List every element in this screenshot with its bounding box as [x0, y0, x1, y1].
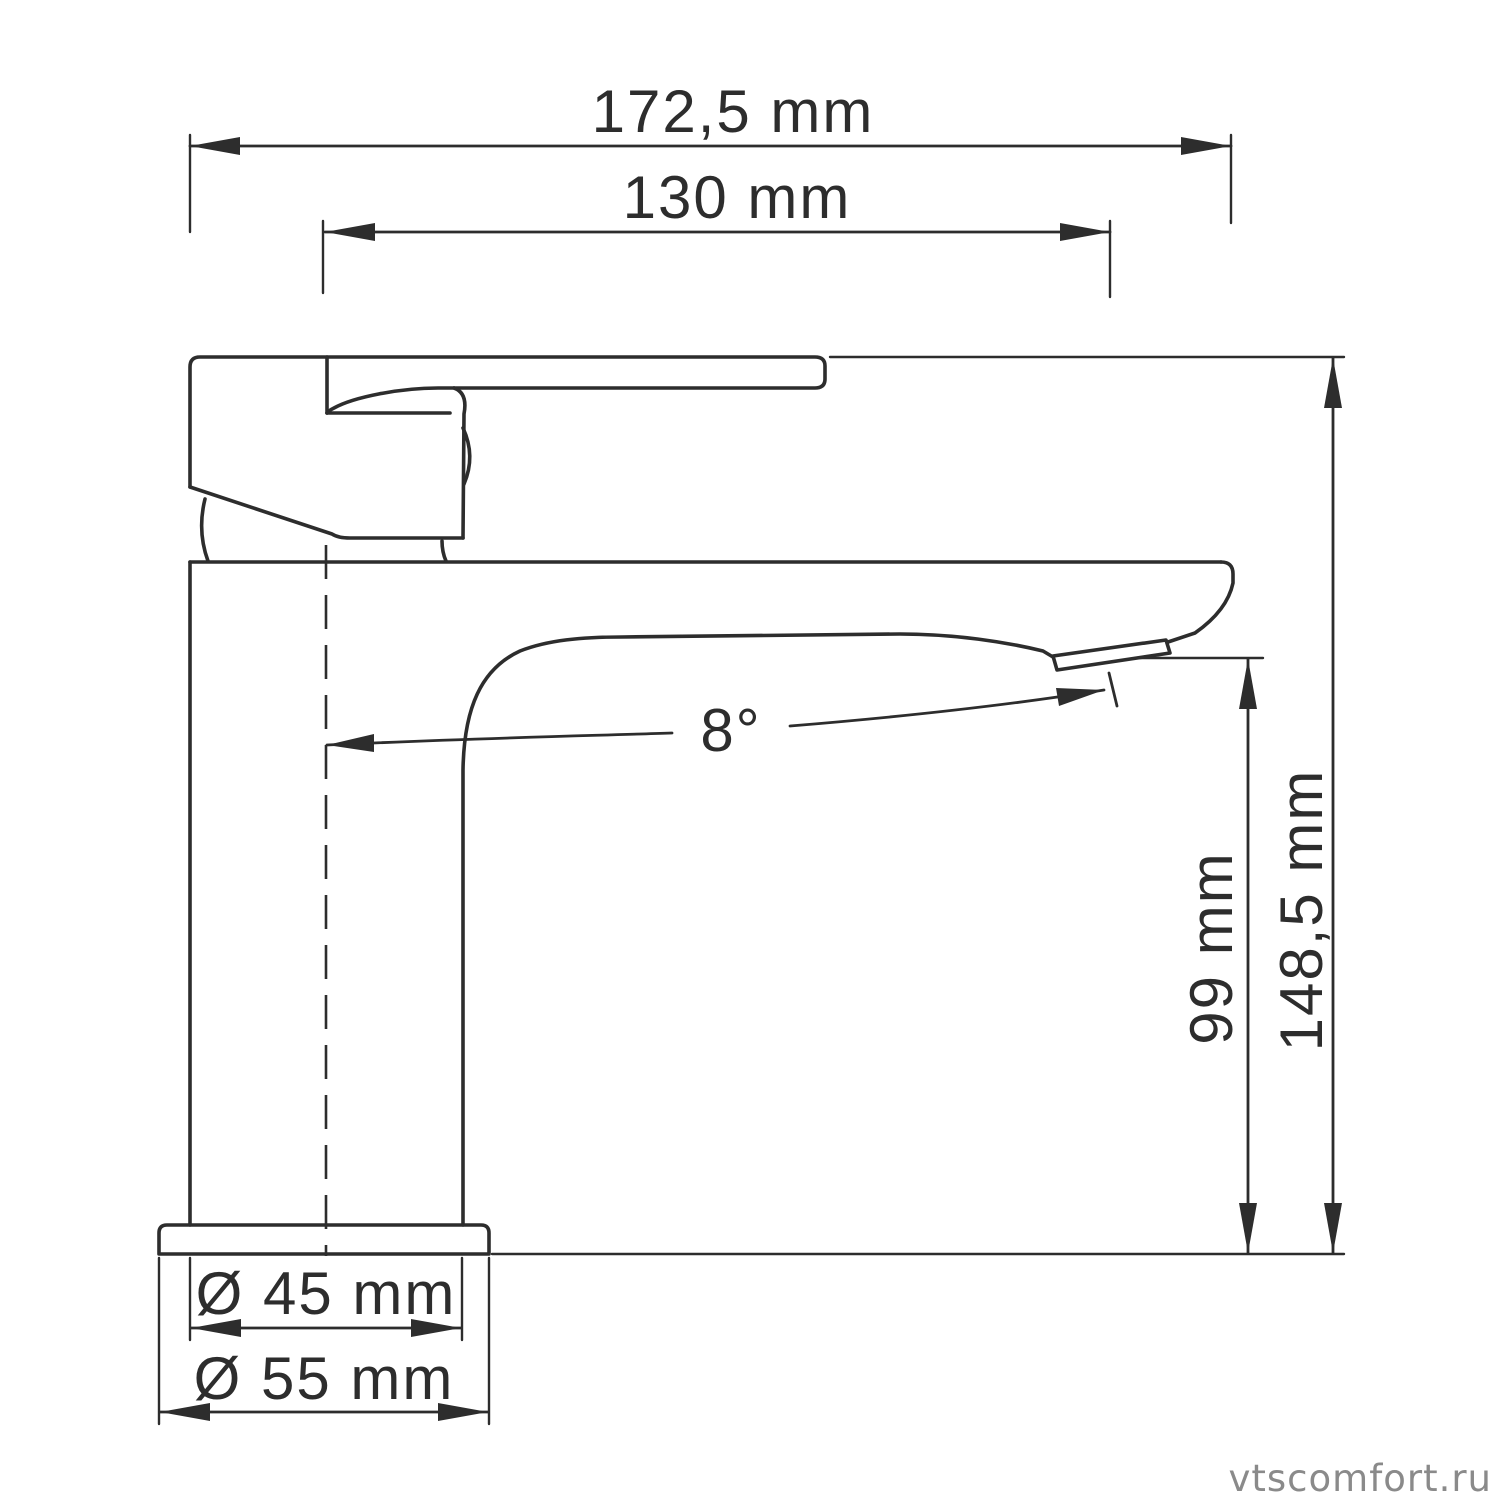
arrowhead-angle-left	[327, 734, 374, 752]
angle-tick	[1109, 673, 1117, 706]
label-reach: 130 mm	[623, 164, 852, 231]
arrowheads	[160, 137, 1342, 1421]
arrowhead-left	[325, 223, 375, 241]
linework	[159, 135, 1344, 1424]
angle-leader-left	[327, 733, 672, 745]
body-front-edge	[454, 388, 465, 538]
spout-right-edge	[1168, 562, 1233, 642]
faucet-dimension-drawing: 172,5 mm 130 mm 8° 99 mm 148,5 mm Ø 45 m…	[0, 0, 1500, 1500]
body-bottom-edge	[190, 487, 463, 538]
arrowhead-left	[190, 137, 240, 155]
neck-arc-left	[202, 499, 208, 561]
body-handle-outline	[190, 357, 825, 487]
label-diameter-base: Ø 55 mm	[194, 1345, 455, 1412]
arrowhead-up	[1239, 659, 1257, 709]
arrowhead-angle-right	[1056, 688, 1104, 706]
label-diameter-body: Ø 45 mm	[196, 1260, 457, 1327]
label-spout-height: 99 mm	[1178, 851, 1245, 1044]
base-flange	[159, 1225, 489, 1254]
label-angle: 8°	[700, 697, 761, 764]
label-overall-width: 172,5 mm	[592, 78, 875, 145]
neck-arc-right	[442, 541, 446, 561]
technical-drawing: 172,5 mm 130 mm 8° 99 mm 148,5 mm Ø 45 m…	[0, 0, 1500, 1500]
aerator	[1053, 640, 1170, 670]
extension-lines	[159, 135, 1344, 1424]
arrowhead-up	[1324, 358, 1342, 408]
faucet-outline	[159, 357, 1233, 1254]
label-total-height: 148,5 mm	[1268, 769, 1335, 1052]
arrowhead-down	[1239, 1203, 1257, 1253]
angle-leader-right	[790, 690, 1104, 726]
arrowhead-right	[1060, 223, 1110, 241]
arrowhead-right	[1181, 137, 1231, 155]
dimension-lines	[160, 146, 1333, 1412]
watermark: vtscomfort.ru	[1228, 1457, 1492, 1500]
arrowhead-down	[1324, 1203, 1342, 1253]
